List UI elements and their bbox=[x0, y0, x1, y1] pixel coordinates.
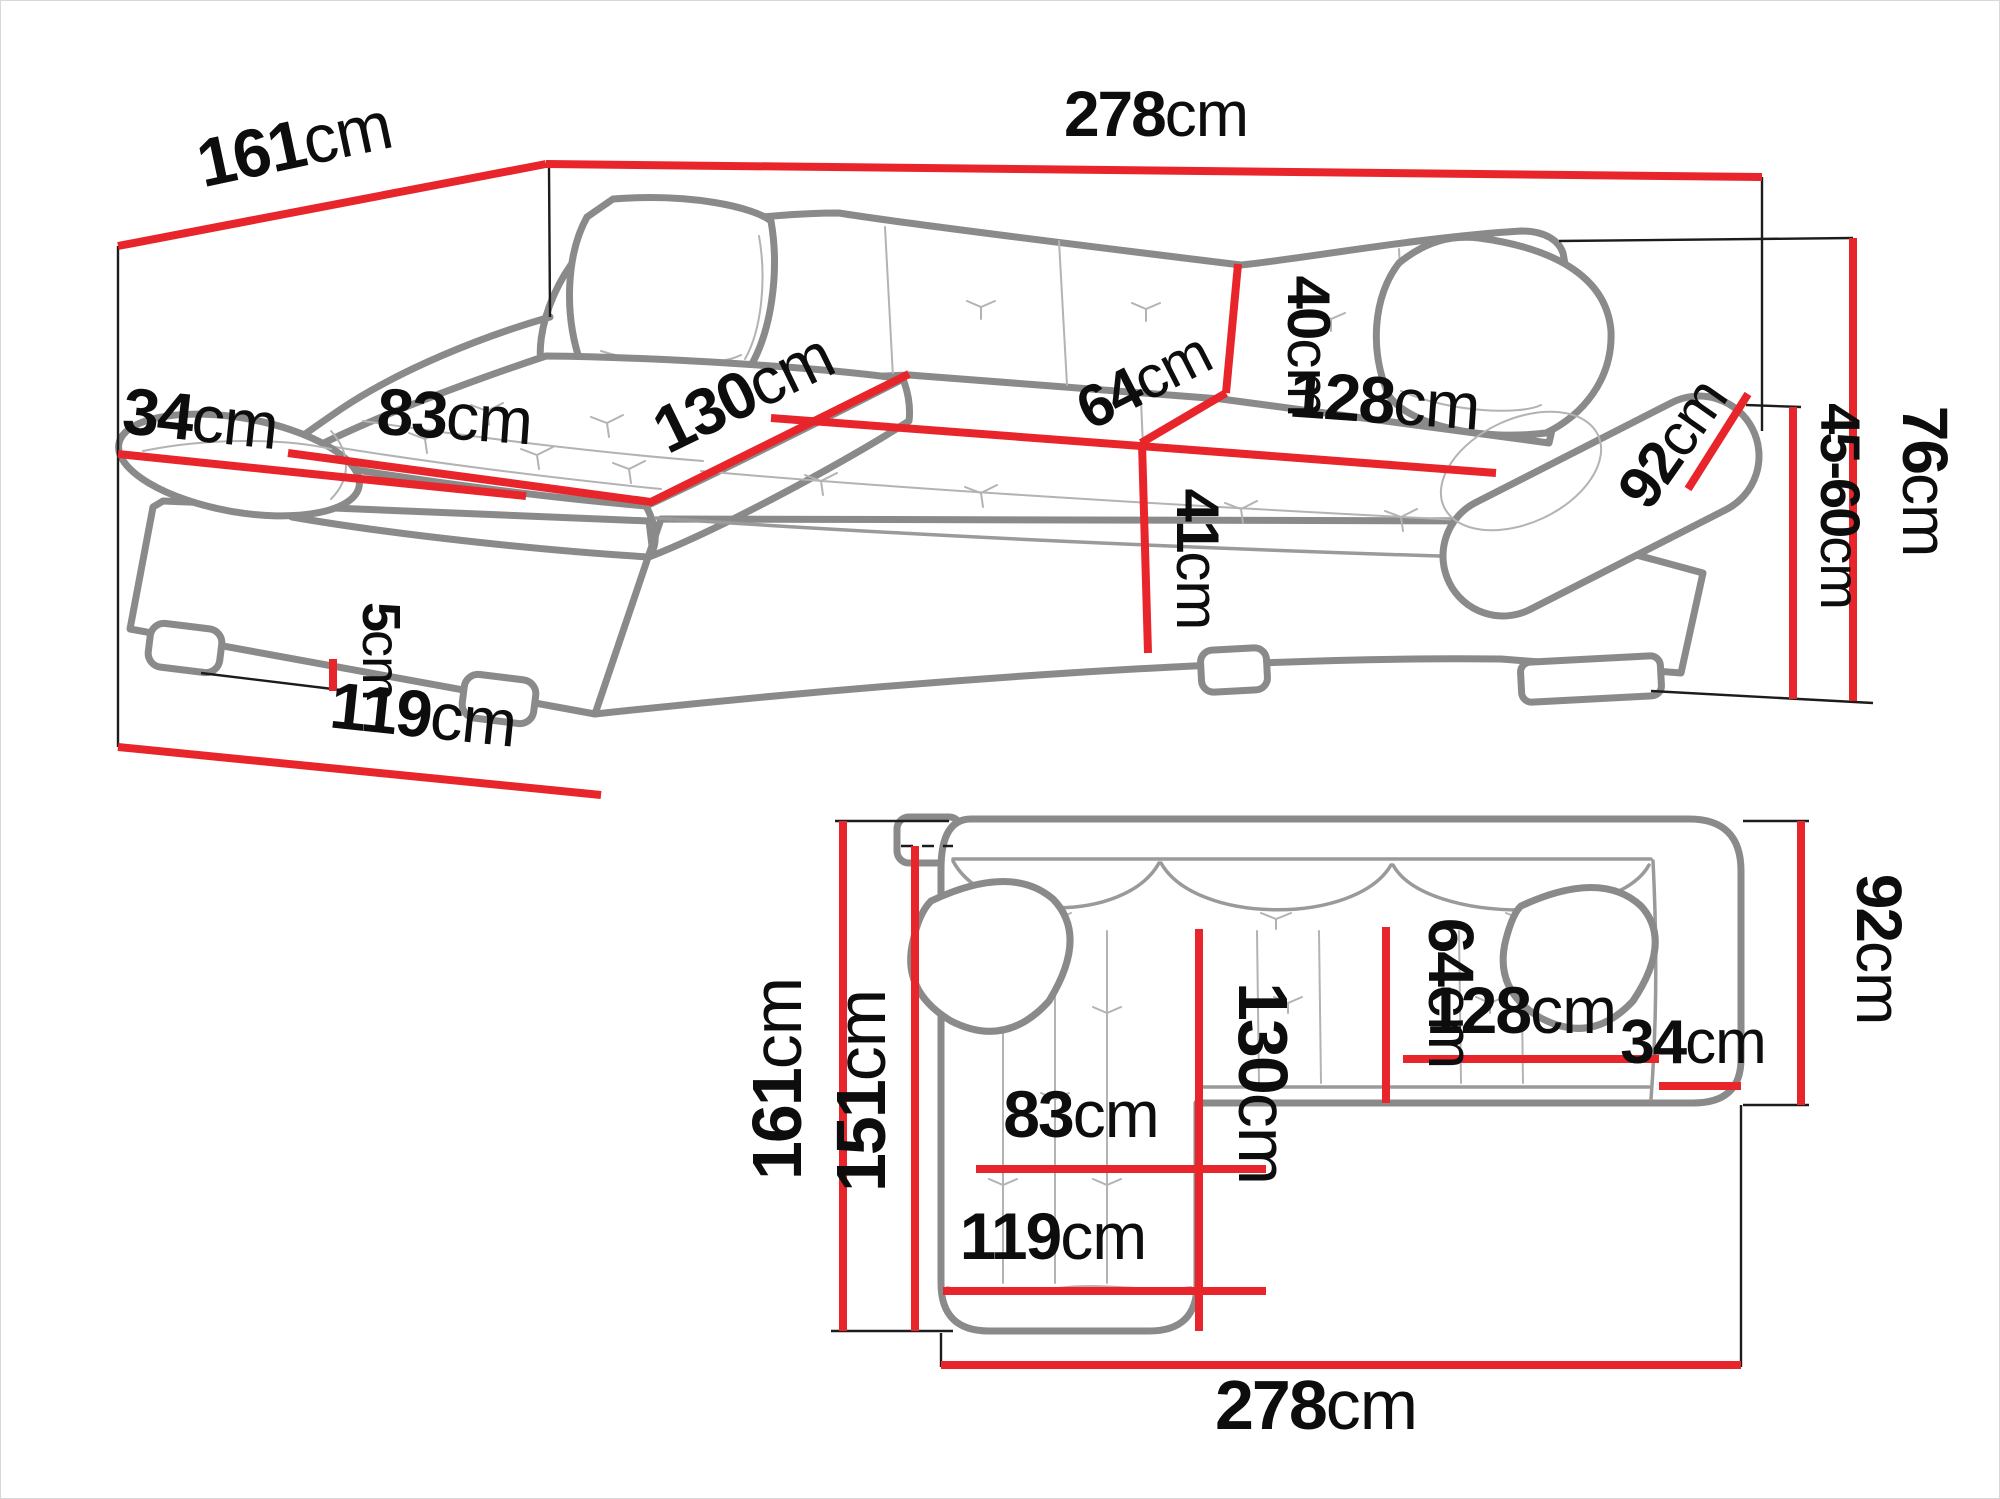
seat-seam bbox=[701, 471, 1481, 521]
label-plan-seat-width: 128cm bbox=[1426, 973, 1616, 1047]
label-plan-inner-depth: 151cm bbox=[822, 990, 900, 1192]
dim-line-chaise-depth bbox=[118, 747, 601, 795]
tuft-mark bbox=[965, 485, 997, 507]
label-plan-chaise-length: 130cm bbox=[1224, 982, 1302, 1184]
label-seat-width: 128cm bbox=[1287, 357, 1482, 444]
label-chaise-seat-width: 83cm bbox=[375, 374, 535, 459]
label-total-depth: 161cm bbox=[190, 87, 398, 202]
extension-line-leg bbox=[201, 673, 349, 691]
sofa-leg-right bbox=[1520, 655, 1662, 702]
label-seat-height: 41cm bbox=[1164, 489, 1231, 630]
sofa-dimension-diagram: 278cm 161cm 34cm 83cm 130cm 64cm 40cm 12… bbox=[0, 0, 2000, 1499]
sofa-leg-front-left bbox=[147, 622, 224, 674]
label-armrest-height-range: 45-60cm bbox=[1809, 403, 1872, 609]
label-plan-armrest-length: 92cm bbox=[1843, 874, 1915, 1025]
dim-line-total-width bbox=[546, 164, 1762, 177]
extension-line-floor-right bbox=[1651, 691, 1873, 703]
label-plan-armrest-width: 34cm bbox=[1620, 1008, 1766, 1077]
extension-line-corner-vertical bbox=[549, 167, 550, 317]
label-plan-total-depth: 161cm bbox=[738, 978, 816, 1180]
sofa-leg-right-mid bbox=[1200, 647, 1268, 692]
label-total-width: 278cm bbox=[1064, 78, 1248, 150]
label-plan-total-width: 278cm bbox=[1215, 1366, 1417, 1444]
dim-line-total-depth bbox=[118, 164, 546, 246]
label-plan-chaise-width: 83cm bbox=[1003, 1077, 1158, 1151]
label-total-height: 76cm bbox=[1889, 406, 1961, 557]
extension-line-armrest-top bbox=[1746, 405, 1801, 407]
label-plan-chaise-total-width: 119cm bbox=[960, 1199, 1146, 1273]
extension-line-height-top bbox=[1559, 238, 1853, 241]
plan-pillow-left bbox=[911, 881, 1070, 1031]
